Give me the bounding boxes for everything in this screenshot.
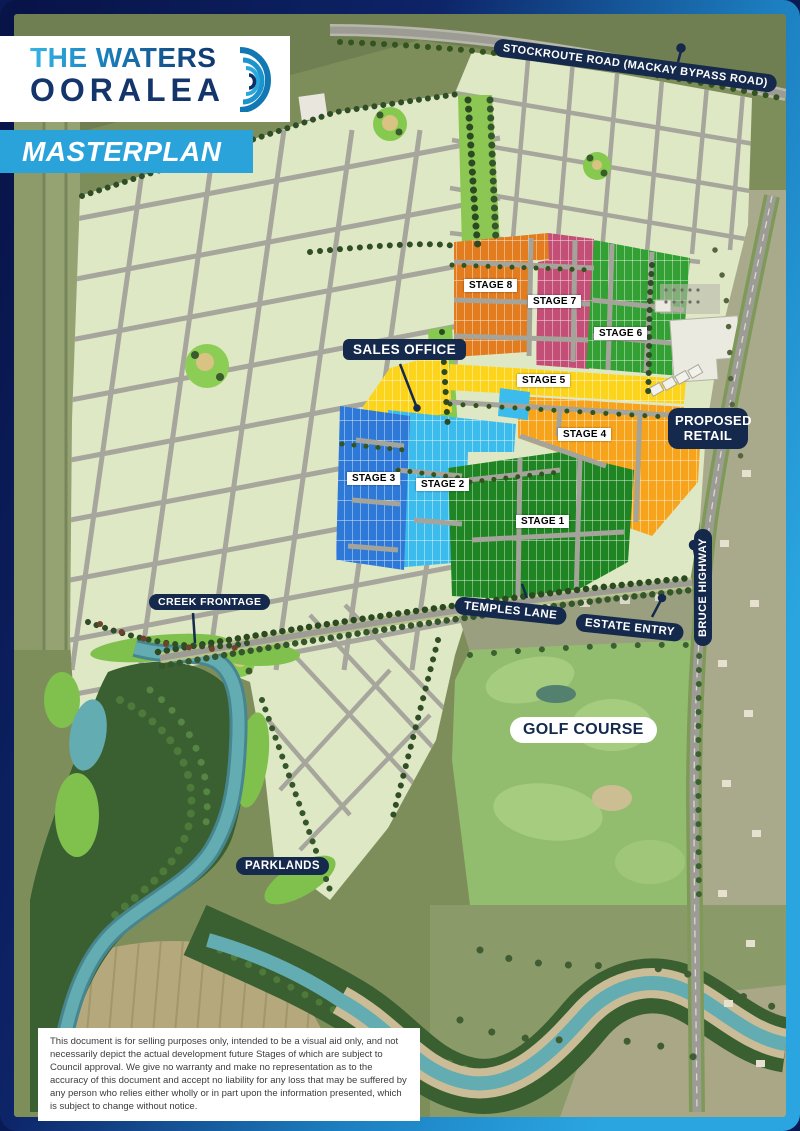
parklands-label: PARKLANDS xyxy=(236,857,329,875)
temples-lane-label: TEMPLES LANE xyxy=(454,596,567,626)
masterplan-banner-label: MASTERPLAN xyxy=(0,136,221,168)
stage-5-label: STAGE 5 xyxy=(517,374,570,387)
logo: THE WATERS OORALEA xyxy=(0,36,290,122)
ripple-icon xyxy=(226,44,286,112)
stage-3-label: STAGE 3 xyxy=(347,472,400,485)
proposed-retail-label: PROPOSED RETAIL xyxy=(668,408,748,449)
creek-frontage-label: CREEK FRONTAGE xyxy=(149,594,270,610)
golf-course-label: GOLF COURSE xyxy=(510,717,657,743)
stage-4-label: STAGE 4 xyxy=(558,428,611,441)
stage-7-label: STAGE 7 xyxy=(528,295,581,308)
disclaimer-text: This document is for selling purposes on… xyxy=(38,1028,420,1121)
stage-6-label: STAGE 6 xyxy=(594,327,647,340)
stage-8-label: STAGE 8 xyxy=(464,279,517,292)
stockroute-road-label: STOCKROUTE ROAD (MACKAY BYPASS ROAD) xyxy=(493,38,778,93)
bruce-highway-label: BRUCE HIGHWAY xyxy=(694,529,712,646)
stage-1-label: STAGE 1 xyxy=(516,515,569,528)
stage-2-label: STAGE 2 xyxy=(416,478,469,491)
sales-office-label: SALES OFFICE xyxy=(343,339,466,360)
logo-subtitle: OORALEA xyxy=(30,74,225,106)
logo-title: THE WATERS xyxy=(30,44,225,72)
masterplan-banner: MASTERPLAN xyxy=(0,130,253,173)
estate-entry-label: ESTATE ENTRY xyxy=(575,613,684,642)
